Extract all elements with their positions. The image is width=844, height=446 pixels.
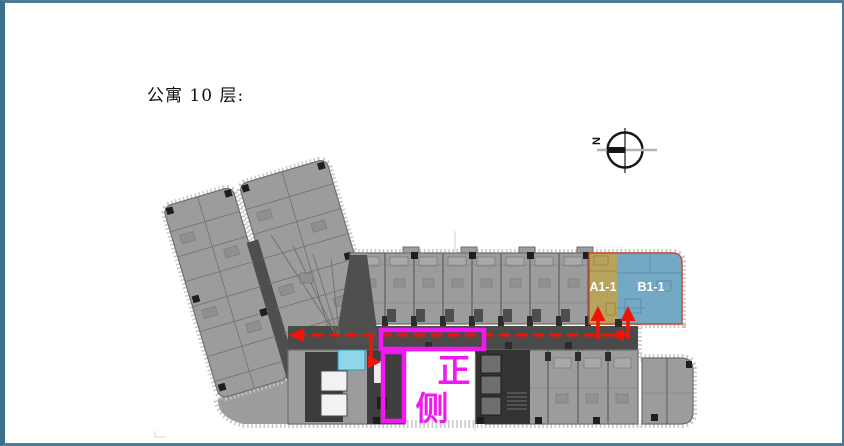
unit-a1-1: A1-1: [589, 253, 617, 324]
bottom-band: [288, 350, 693, 424]
document-page: 公寓 10 层:: [0, 0, 844, 446]
north-arrow-icon: N: [591, 128, 657, 173]
unit-b1-1-label: B1-1: [637, 280, 664, 294]
side-label: 侧: [416, 389, 449, 428]
floor-plan: A1-1 B1-1: [5, 3, 844, 446]
front-label: 正: [438, 351, 471, 390]
highlighted-room: [338, 350, 365, 370]
north-label: N: [591, 137, 603, 145]
service-core: [475, 350, 530, 424]
unit-a1-1-label: A1-1: [589, 280, 616, 294]
